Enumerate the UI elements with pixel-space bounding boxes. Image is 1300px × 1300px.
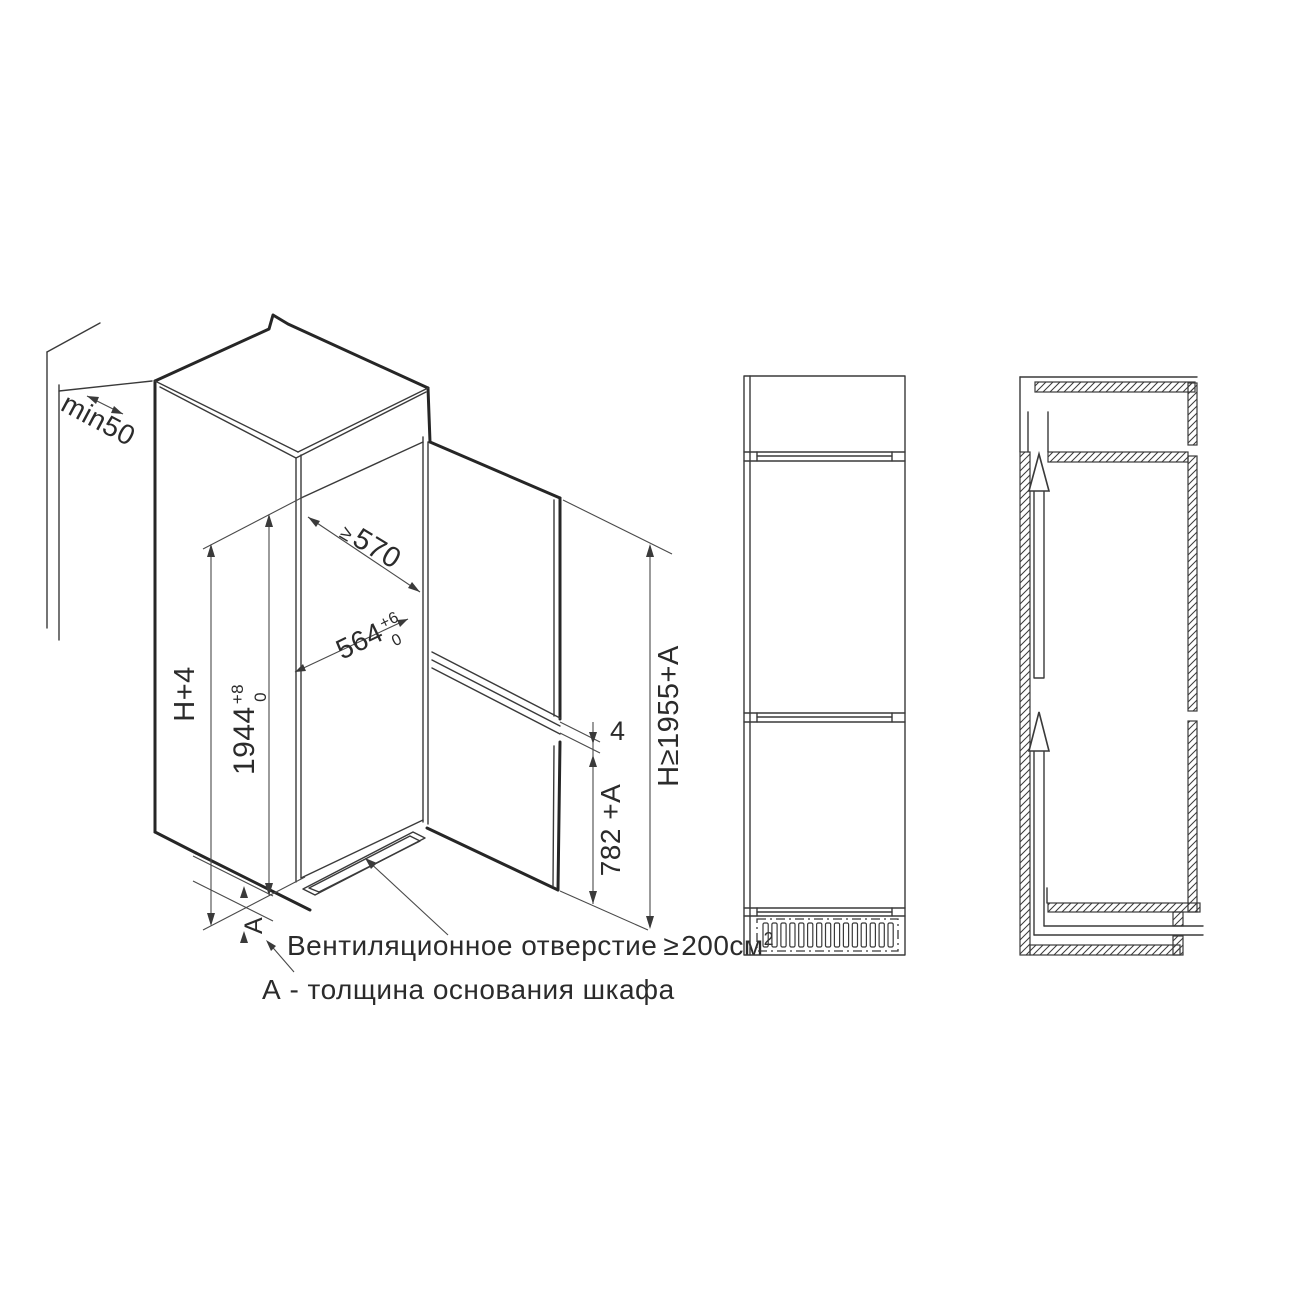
grille-slat [808, 923, 813, 947]
grille-slat [888, 923, 893, 947]
dim-lower-door: 782 +A [560, 784, 648, 930]
grille-slat [781, 923, 786, 947]
grille-slat [843, 923, 848, 947]
grille-slats [763, 923, 893, 947]
dim-niche-height-label: 1944+80 [228, 684, 270, 775]
grille-slat [870, 923, 875, 947]
section-view [1020, 377, 1203, 955]
front-divider-bottom [744, 908, 905, 916]
front-outline [744, 376, 905, 955]
diagram-svg: min50 H+4 1944+80 ≥570 [0, 0, 1300, 1300]
dim-niche-height: 1944+80 [228, 514, 273, 896]
front-view [744, 376, 905, 955]
grille-slat [790, 923, 795, 947]
grille-border [757, 919, 898, 951]
grille-slat [879, 923, 884, 947]
front-wall-lower-door-segment [1188, 721, 1197, 912]
isometric-view: min50 H+4 1944+80 ≥570 [47, 315, 774, 1005]
grille-slat [861, 923, 866, 947]
plinth-upper-piece [1173, 912, 1183, 926]
grille-slat [834, 923, 839, 947]
grille-slat [799, 923, 804, 947]
dim-width: 564+60 [295, 607, 411, 673]
vent-note: Вентиляционное отверстие≥200см2 [287, 858, 774, 961]
cabinet-top-panel [1035, 382, 1195, 392]
extension-line-top [203, 496, 305, 549]
airflow-arrow-lower [1029, 712, 1049, 935]
dim-total-height-label: H≥1955+A [653, 645, 685, 787]
open-door [427, 442, 560, 890]
back-wall [1020, 452, 1030, 955]
grille-slat [852, 923, 857, 947]
installation-diagram: min50 H+4 1944+80 ≥570 [0, 0, 1300, 1300]
front-divider-middle [744, 713, 905, 722]
dim-depth: ≥570 [308, 515, 420, 592]
dim-width-label: 564+60 [331, 607, 411, 673]
airflow-arrow-upper [1029, 454, 1049, 678]
appliance-bottom-panel [1048, 903, 1200, 912]
vent-note-text: Вентиляционное отверстие≥200см2 [287, 929, 774, 961]
dim-base-thickness-label: А [240, 917, 268, 934]
dim-door-gap-label: 4 [610, 716, 626, 746]
front-wall-top-segment [1188, 383, 1197, 445]
rear-wall [47, 323, 152, 640]
ventilation-grille [757, 919, 898, 951]
appliance-top-panel [1048, 452, 1188, 462]
plinth-lower-piece [1173, 936, 1183, 955]
dim-depth-label: ≥570 [335, 515, 407, 576]
vent-slot [303, 832, 425, 895]
front-wall-upper-door-segment [1188, 456, 1197, 711]
front-divider-top [744, 452, 905, 461]
dim-housing-height-label: H+4 [169, 666, 201, 722]
cabinet-base-panel [1030, 945, 1180, 955]
dim-lower-door-label: 782 +A [595, 784, 626, 877]
base-note-text: А - толщина основания шкафа [262, 974, 675, 1005]
grille-slat [817, 923, 822, 947]
dim-housing-height: H+4 [169, 544, 215, 926]
dim-wall-gap: min50 [56, 387, 140, 451]
grille-slat [826, 923, 831, 947]
